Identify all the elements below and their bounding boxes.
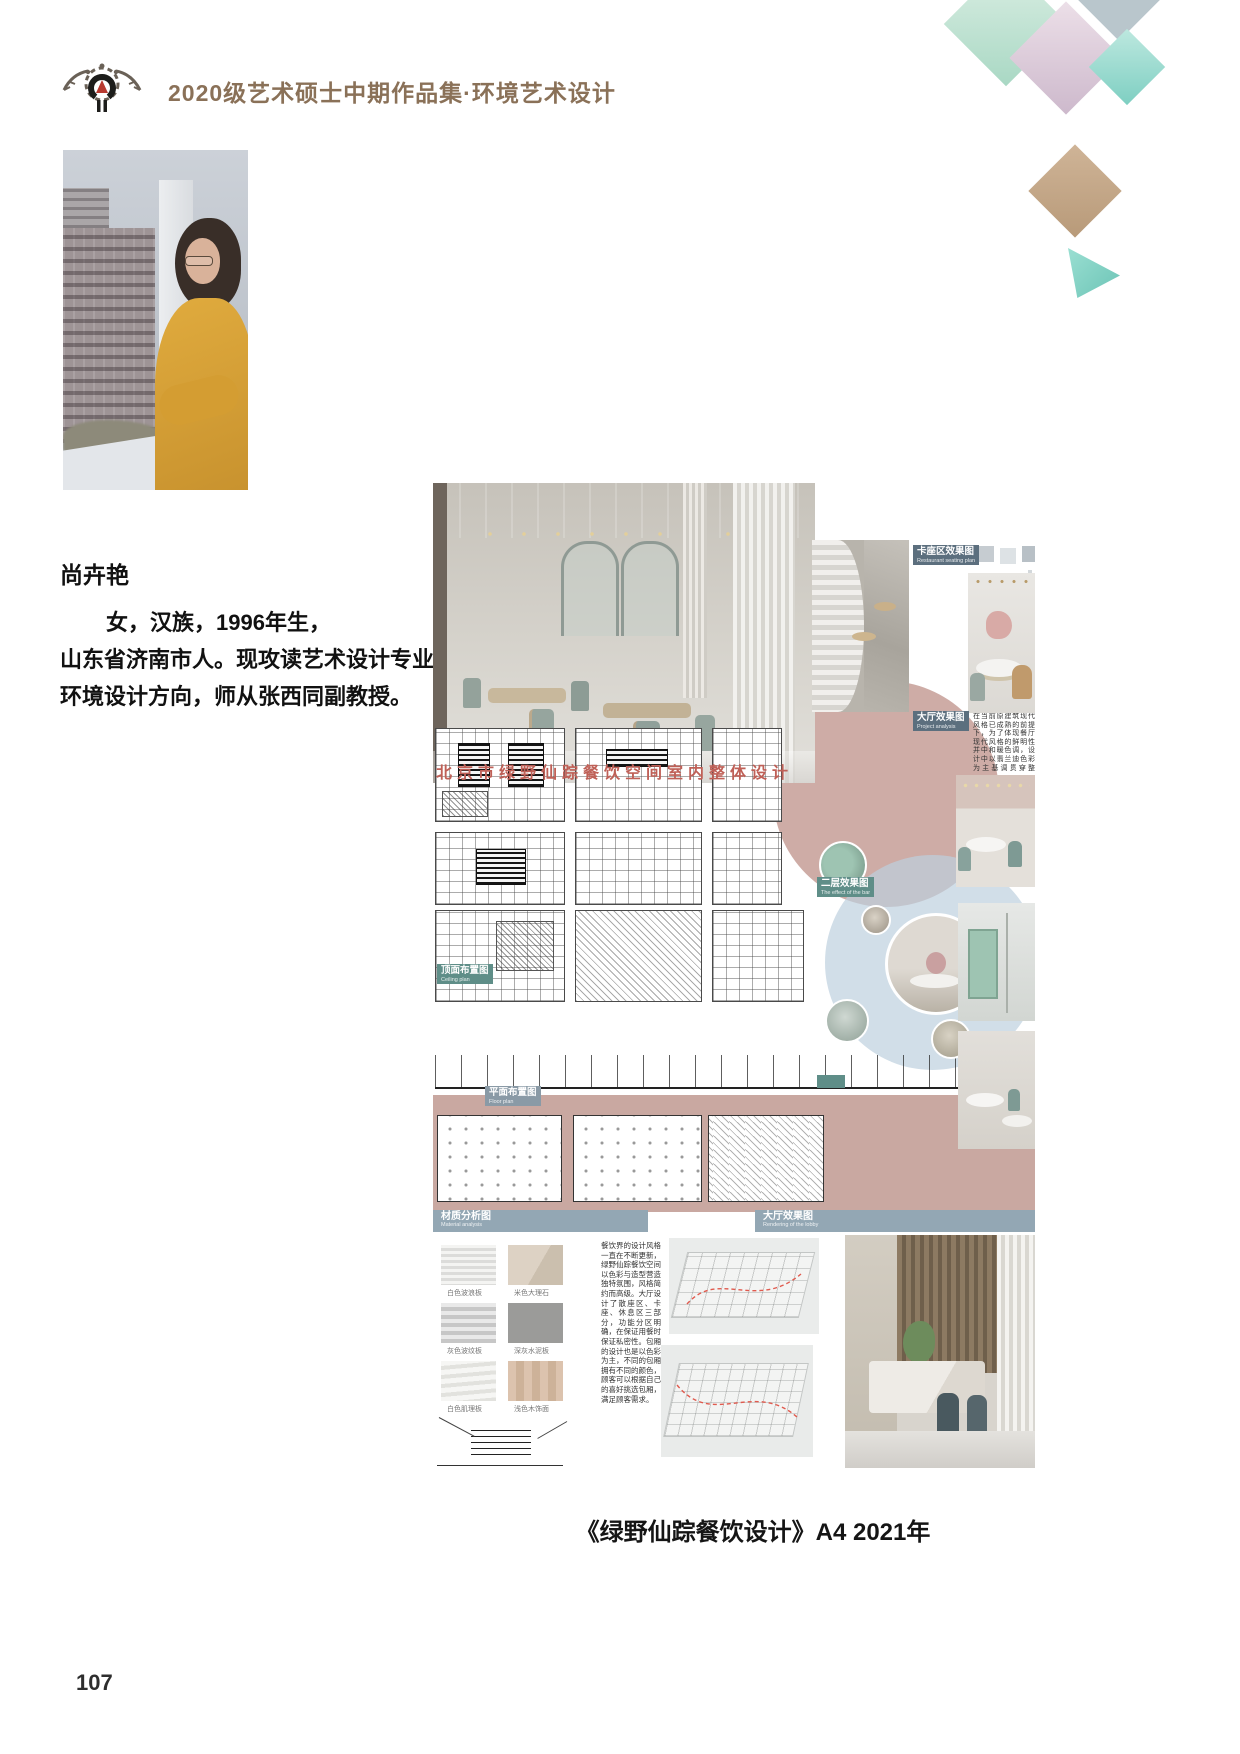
table — [488, 688, 566, 703]
pendant-lights — [473, 531, 773, 537]
portfolio-page: 2020级艺术硕士中期作品集·环境艺术设计 尚卉艳 女，汉族，1996年生， 山… — [0, 0, 1240, 1754]
swatch-caption: 灰色波纹板 — [447, 1346, 482, 1356]
render-column-center — [683, 483, 707, 698]
render-arch-partition — [561, 541, 619, 636]
circulation-path — [669, 1238, 819, 1334]
hatch-fill — [496, 921, 554, 971]
render-banquet — [956, 775, 1035, 887]
round-table — [1002, 1115, 1032, 1127]
cad-floor-plan — [435, 910, 565, 1002]
wavy-panel — [812, 540, 864, 712]
cad-plan-narrow — [712, 910, 804, 1002]
cad-elevations-strip — [435, 1055, 1031, 1089]
author-name: 尚卉艳 — [60, 556, 490, 590]
material-swatch — [508, 1303, 563, 1343]
mint-door — [968, 929, 998, 999]
lamp — [852, 632, 876, 641]
chair — [958, 847, 971, 871]
swatch-caption: 白色波浪板 — [447, 1288, 482, 1298]
label-ceiling-plan: 顶面布置图 Ceiling plan — [437, 964, 493, 984]
marble-wall — [864, 540, 909, 712]
bio-line-1: 女，汉族，1996年生， — [60, 604, 490, 641]
vignette-small — [825, 999, 869, 1043]
axon-model-bottom — [661, 1345, 813, 1457]
artwork-collage: 北京市绿野仙踪餐饮空间室内整体设计 卡座区效果图 Restaurant seat… — [433, 483, 1035, 1468]
render-banquet-2 — [958, 1031, 1035, 1149]
render-dining-area — [968, 573, 1035, 713]
label-floor-plan: 平面布置图 Floor plan — [485, 1086, 541, 1106]
artwork-caption: 《绿野仙踪餐饮设计》A4 2021年 — [453, 1512, 1053, 1547]
banner-material: 材质分析图 Material analysis — [433, 1210, 648, 1232]
analysis-paragraph: 在当前原建筑现代风格已成熟的前提下，为了体现餐厅现代风格的鲜明性并中和暖色调，设… — [973, 713, 1035, 771]
hatch-fill — [442, 791, 488, 817]
design-paragraph: 餐饮界的设计风格一直在不断更新，绿野仙踪餐饮空间以色彩与造型营造独特氛围，风格简… — [601, 1241, 661, 1459]
artwork-title-overlay: 北京市绿野仙踪餐饮空间室内整体设计 — [436, 759, 1032, 783]
table — [603, 703, 691, 718]
render-corridor — [958, 903, 1035, 1021]
render-column-closeup — [812, 540, 909, 712]
round-table — [966, 837, 1006, 852]
material-swatch — [508, 1361, 563, 1401]
vignette-small — [861, 905, 891, 935]
stripe-fill — [476, 849, 526, 885]
label-seat-area: 卡座区效果图 Restaurant seating plan — [913, 545, 979, 565]
swatch-caption: 白色肌理板 — [447, 1404, 482, 1414]
marble-floor — [845, 1431, 1035, 1468]
table — [910, 974, 960, 988]
lamp — [874, 602, 896, 611]
chair — [463, 678, 481, 708]
swatch-caption: 浅色木饰面 — [514, 1404, 549, 1414]
flowers — [986, 611, 1012, 639]
banner-lobby: 大厅效果图 Rendering of the lobby — [755, 1210, 1035, 1232]
chair — [1008, 1089, 1020, 1111]
label-second-floor: 二层效果图 The effect of the bar — [817, 877, 874, 897]
page-title: 2020级艺术硕士中期作品集·环境艺术设计 — [168, 74, 616, 108]
chair — [970, 673, 985, 701]
round-table — [966, 1093, 1004, 1107]
material-swatch — [441, 1303, 496, 1343]
furniture-plan-1 — [437, 1115, 562, 1202]
chair — [1008, 841, 1022, 867]
deco-mosaic-squares — [978, 546, 994, 562]
page-number: 107 — [76, 1670, 113, 1696]
material-swatch — [508, 1245, 563, 1285]
plant — [903, 1321, 935, 1363]
cad-ceiling-plan — [435, 832, 565, 905]
deco-diamond-tan — [1028, 144, 1121, 237]
school-emblem-icon — [60, 56, 144, 120]
flowers — [926, 952, 946, 974]
material-swatch — [441, 1361, 496, 1401]
label-mini-teal — [817, 1075, 845, 1088]
leader-line — [439, 1417, 475, 1437]
cad-section-detail — [437, 1413, 563, 1466]
swatch-caption: 米色大理石 — [514, 1288, 549, 1298]
rattan-chair — [1012, 665, 1032, 699]
circulation-path — [661, 1345, 813, 1457]
cad-ceiling-plan — [575, 832, 702, 905]
ceiling-lights — [960, 783, 1030, 788]
photo-building-near — [63, 228, 155, 443]
photo-person-glasses — [185, 256, 213, 266]
render-bar-lobby — [845, 1235, 1035, 1468]
author-bio: 尚卉艳 女，汉族，1996年生， 山东省济南市人。现攻读艺术设计专业 环境设计方… — [60, 556, 490, 715]
leader-line — [537, 1421, 567, 1439]
label-hall-render: 大厅效果图 Project analysis — [913, 711, 969, 731]
band-note-line — [878, 1089, 942, 1093]
furniture-plan-2 — [573, 1115, 702, 1202]
bio-line-3: 环境设计方向，师从张西同副教授。 — [60, 678, 490, 715]
wall-line — [1006, 913, 1008, 1013]
deco-triangle-teal — [1068, 248, 1120, 298]
cad-plan-narrow — [712, 832, 782, 905]
chair — [571, 681, 589, 711]
swatch-caption: 深灰水泥板 — [514, 1346, 549, 1356]
render-arch-partition — [621, 541, 679, 636]
axon-model-top — [669, 1238, 819, 1334]
furniture-plan-3 — [708, 1115, 824, 1202]
author-portrait-photo — [63, 150, 248, 490]
pendant-lights — [972, 579, 1030, 584]
bio-line-2: 山东省济南市人。现攻读艺术设计专业 — [60, 641, 490, 678]
material-swatch — [441, 1245, 496, 1285]
cad-hatched-plan — [575, 910, 702, 1002]
